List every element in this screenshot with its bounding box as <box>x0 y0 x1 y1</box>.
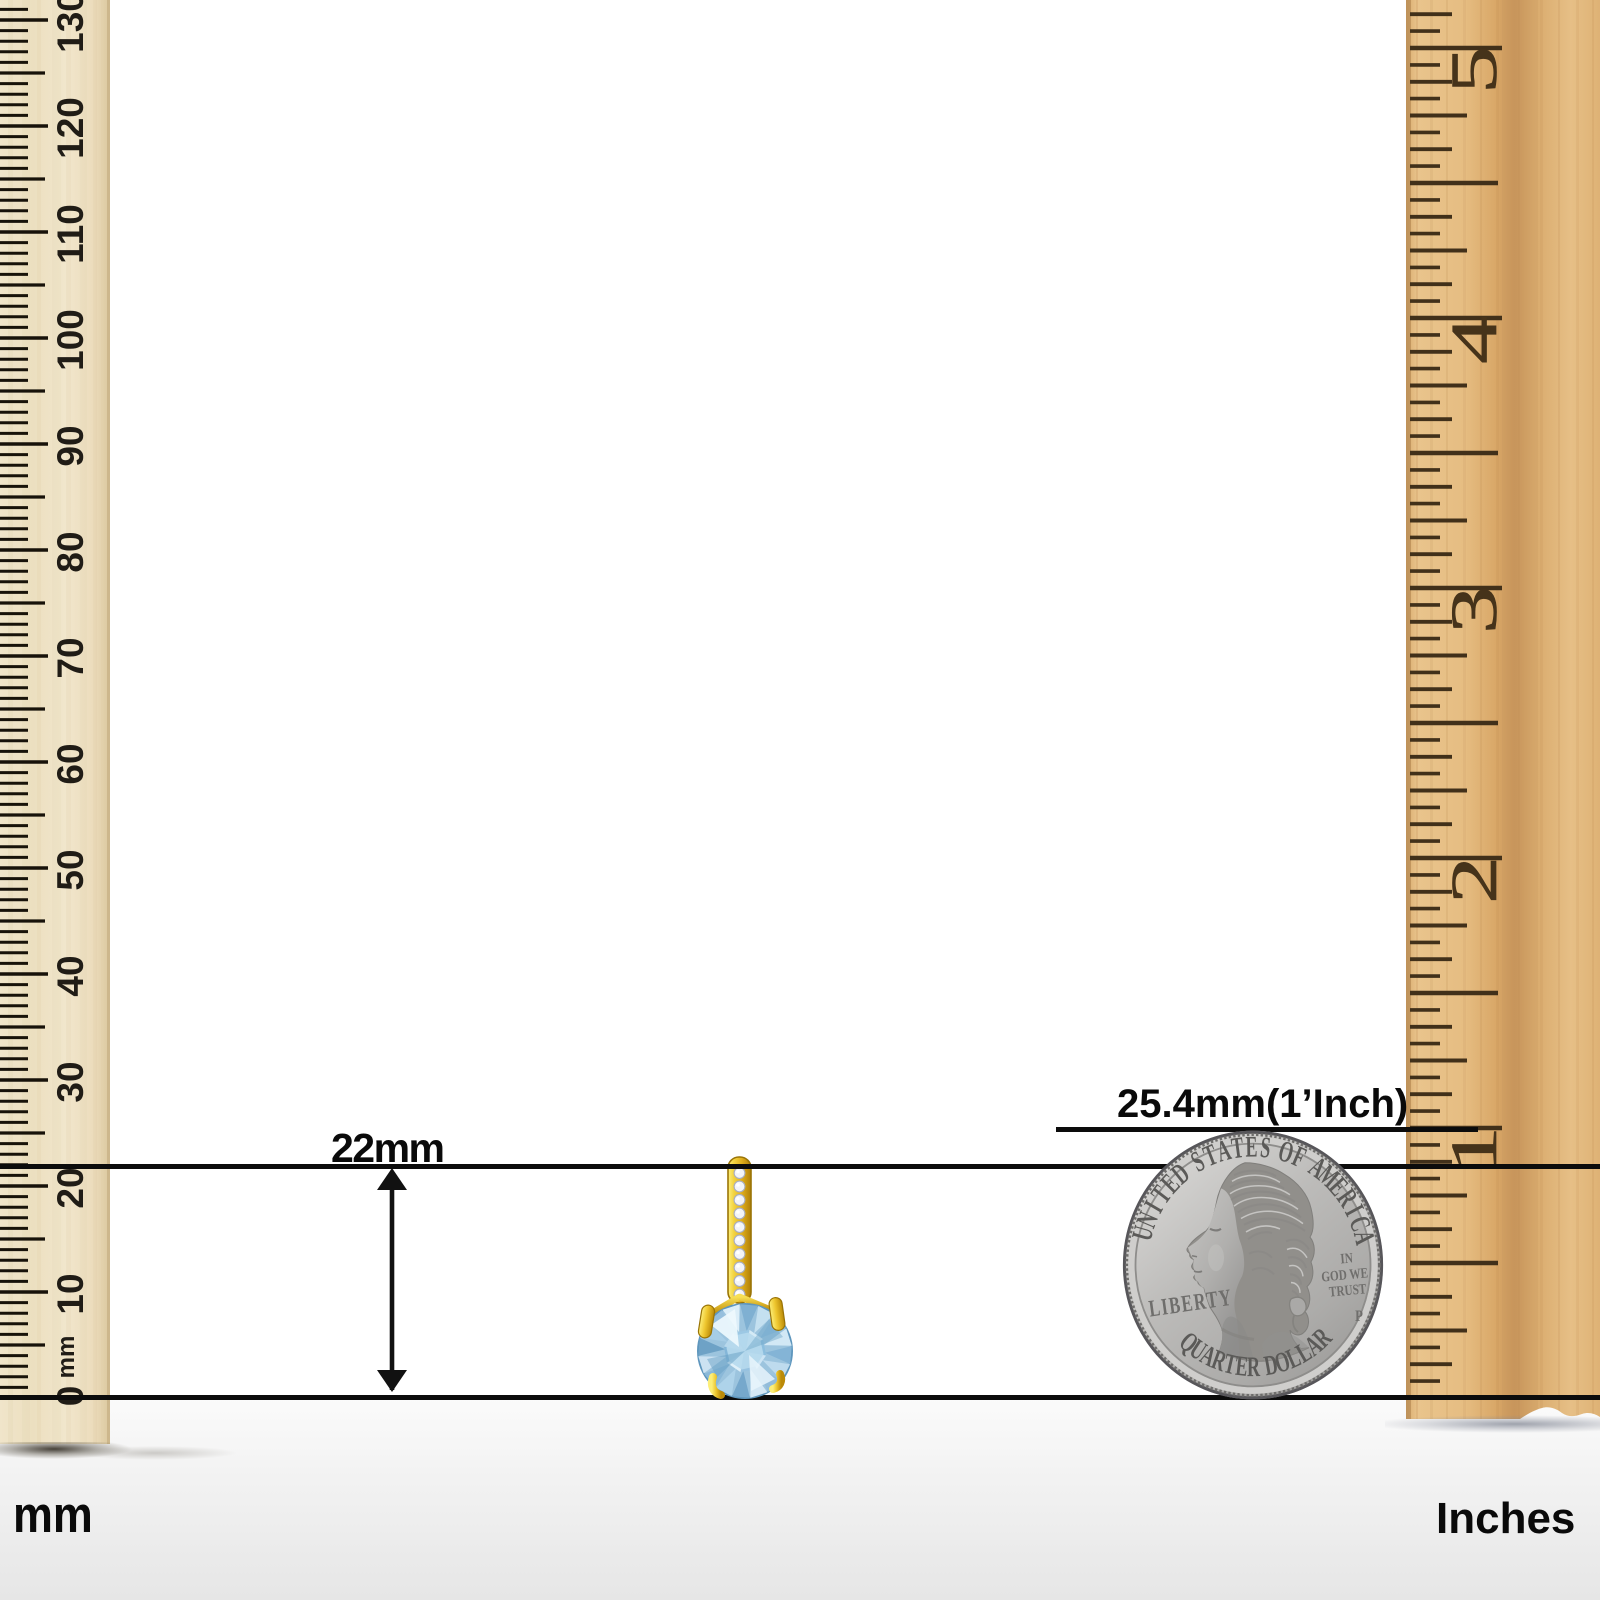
svg-text:E: E <box>1245 1131 1257 1164</box>
svg-text:mm: mm <box>53 1336 80 1379</box>
svg-text:130: 130 <box>50 0 91 53</box>
svg-text:2: 2 <box>1437 856 1510 904</box>
svg-text:5: 5 <box>1437 46 1510 94</box>
svg-text:IN: IN <box>1340 1249 1354 1267</box>
svg-text:50: 50 <box>50 849 91 890</box>
svg-text:40: 40 <box>50 955 91 996</box>
svg-text:90: 90 <box>50 425 91 466</box>
svg-text:3: 3 <box>1437 586 1510 634</box>
svg-text:20: 20 <box>50 1167 91 1208</box>
svg-text:110: 110 <box>50 204 91 264</box>
svg-text:P: P <box>1355 1308 1363 1325</box>
svg-text:4: 4 <box>1437 316 1510 364</box>
svg-text:TRUST: TRUST <box>1328 1280 1367 1300</box>
svg-text:R: R <box>1247 1352 1261 1383</box>
svg-text:100: 100 <box>50 309 91 371</box>
svg-text:10: 10 <box>50 1273 91 1314</box>
svg-text:60: 60 <box>50 743 91 784</box>
svg-text:80: 80 <box>50 531 91 572</box>
svg-text:120: 120 <box>50 97 91 159</box>
svg-text:30: 30 <box>50 1061 91 1102</box>
svg-text:70: 70 <box>50 637 91 678</box>
